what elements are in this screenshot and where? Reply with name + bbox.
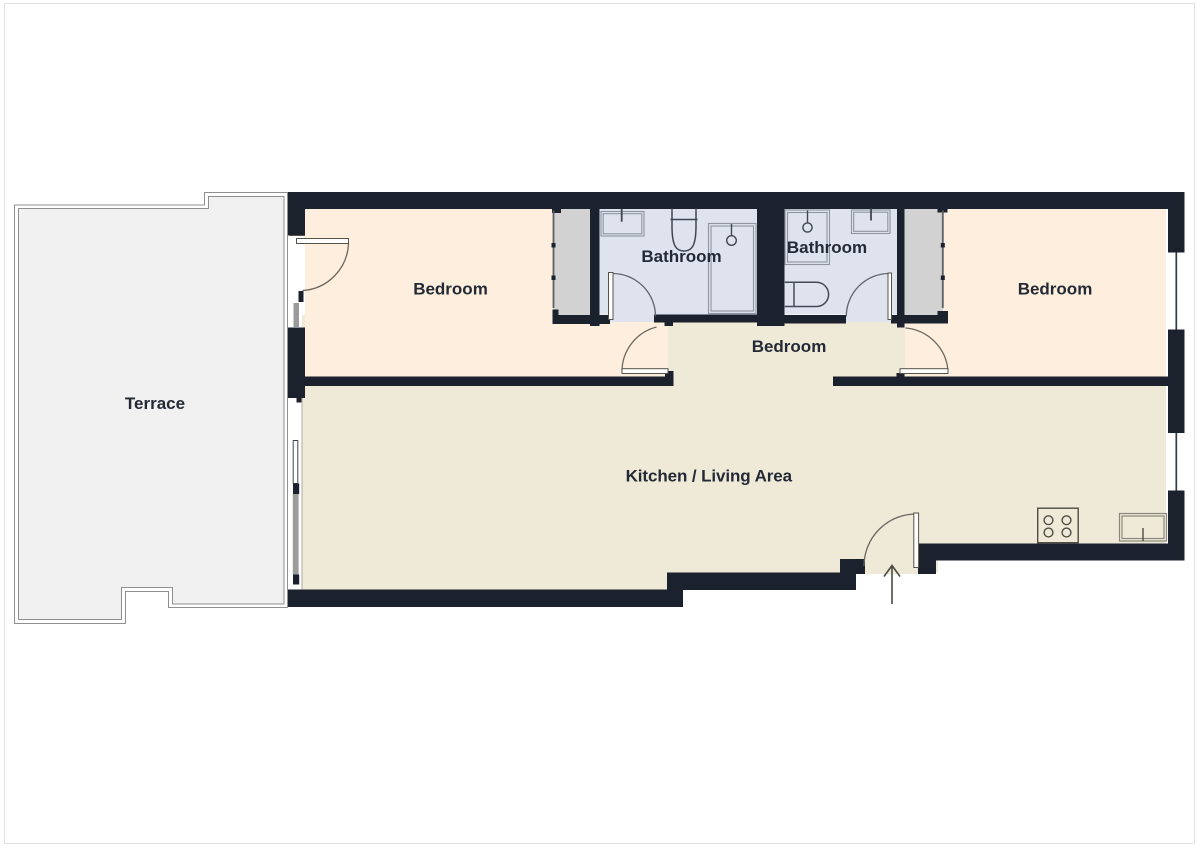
svg-text:Bedroom: Bedroom: [752, 337, 827, 356]
svg-text:Terrace: Terrace: [125, 394, 185, 413]
svg-text:Bathroom: Bathroom: [787, 238, 867, 257]
svg-text:Kitchen / Living Area: Kitchen / Living Area: [626, 467, 793, 486]
svg-text:Bedroom: Bedroom: [1018, 280, 1093, 299]
svg-text:Bathroom: Bathroom: [641, 247, 721, 266]
svg-text:Bedroom: Bedroom: [413, 280, 488, 299]
